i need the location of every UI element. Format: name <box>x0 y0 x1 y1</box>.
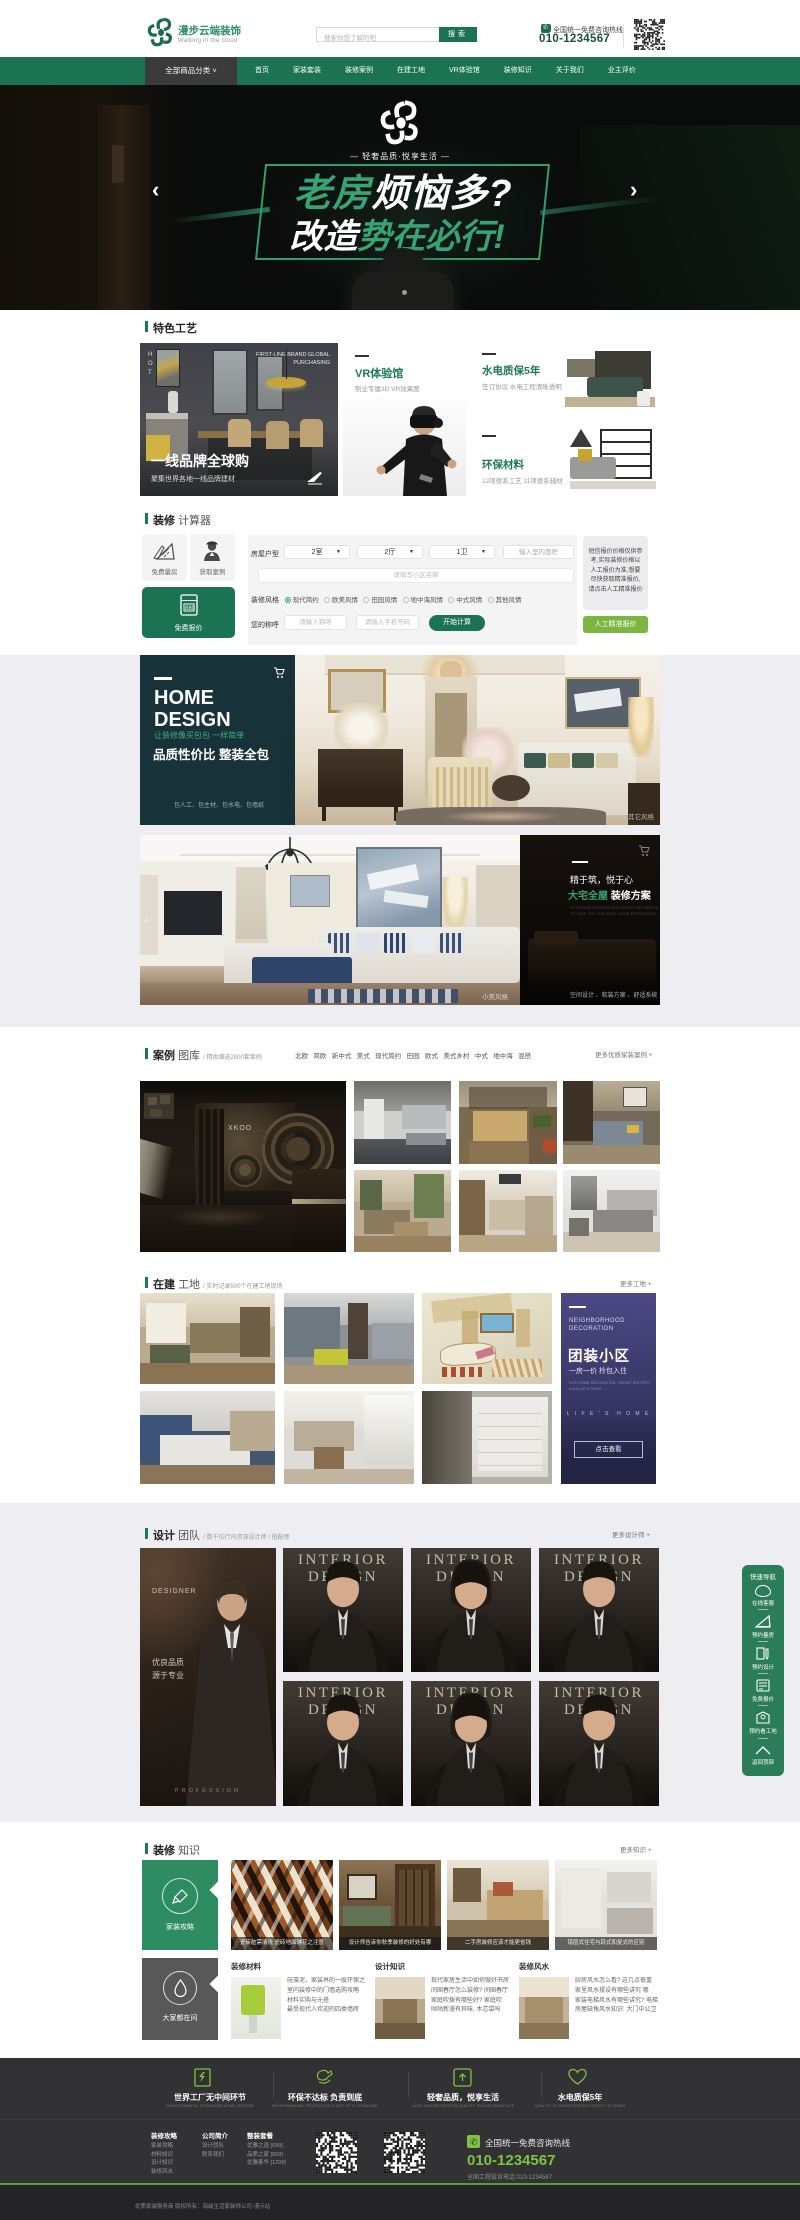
svg-text:880: 880 <box>185 606 196 612</box>
